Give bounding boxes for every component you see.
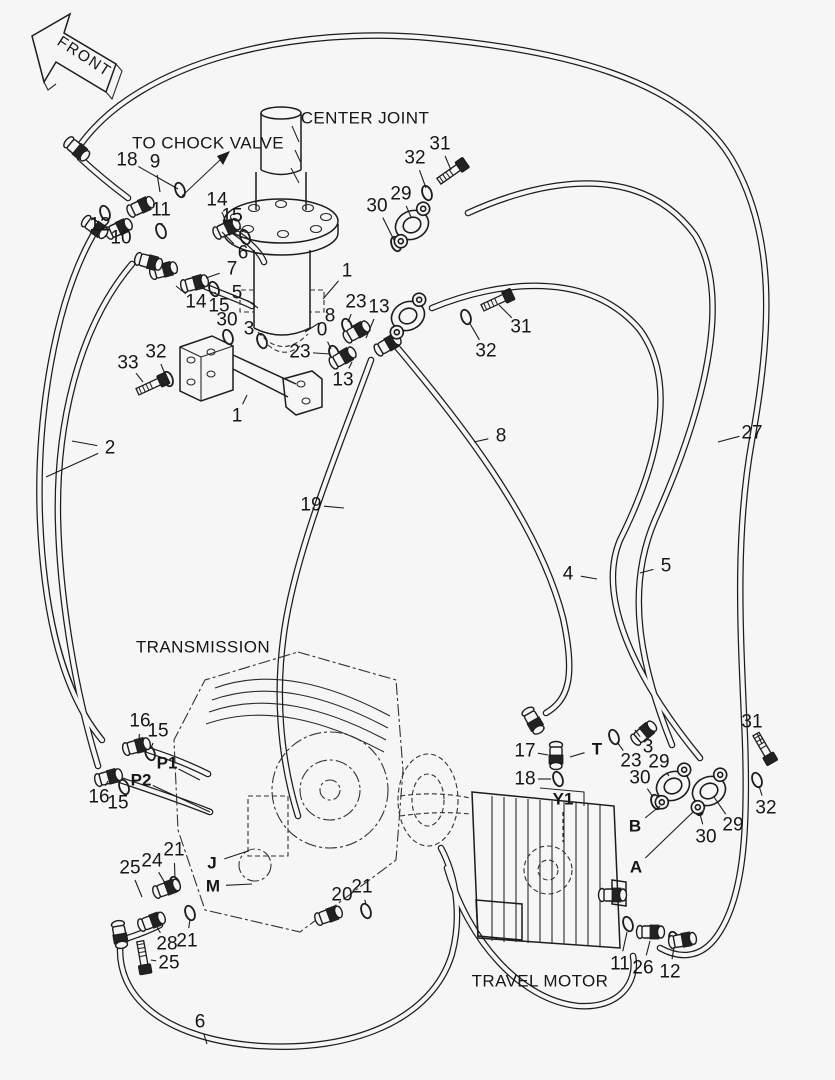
callout-20: 20 bbox=[331, 886, 352, 905]
callout-30: 30 bbox=[366, 197, 387, 216]
callout-4: 4 bbox=[563, 565, 574, 584]
callout-13: 13 bbox=[332, 371, 353, 390]
callout-5: 5 bbox=[661, 557, 672, 576]
callout-30: 30 bbox=[216, 311, 237, 330]
callout-16: 16 bbox=[88, 788, 109, 807]
callout-M: M bbox=[206, 878, 220, 895]
callout-12: 12 bbox=[659, 963, 680, 982]
callout-21: 21 bbox=[163, 841, 184, 860]
callout-31: 31 bbox=[741, 713, 762, 732]
callout-29: 29 bbox=[390, 185, 411, 204]
callout-30: 30 bbox=[629, 769, 650, 788]
label-transmission: TRANSMISSION bbox=[136, 639, 270, 656]
callout-14: 14 bbox=[185, 293, 206, 312]
callout-24: 24 bbox=[141, 852, 162, 871]
callout-5: 5 bbox=[232, 284, 243, 303]
callout-0: 0 bbox=[317, 321, 328, 340]
label-to-chock-valve: TO CHOCK VALVE bbox=[132, 135, 284, 152]
callout-B: B bbox=[629, 818, 641, 835]
callout-9: 9 bbox=[150, 153, 161, 172]
callout-21: 21 bbox=[351, 878, 372, 897]
callout-8: 8 bbox=[496, 427, 507, 446]
callout-30: 30 bbox=[695, 828, 716, 847]
callout-23: 23 bbox=[345, 293, 366, 312]
callout-31: 31 bbox=[429, 135, 450, 154]
callout-11: 11 bbox=[610, 955, 630, 974]
callout-1: 1 bbox=[342, 262, 353, 281]
callout-26: 26 bbox=[632, 959, 653, 978]
callout-13: 13 bbox=[368, 298, 389, 317]
callout-21: 21 bbox=[176, 932, 197, 951]
callout-6: 6 bbox=[238, 244, 249, 263]
callout-Y1: Y1 bbox=[553, 791, 574, 808]
callout-33: 33 bbox=[117, 354, 138, 373]
callout-25: 25 bbox=[119, 859, 140, 878]
callout-15: 15 bbox=[147, 722, 168, 741]
callout-25: 25 bbox=[158, 954, 179, 973]
callout-3: 3 bbox=[244, 320, 255, 339]
callout-29: 29 bbox=[648, 753, 669, 772]
callout-2: 2 bbox=[105, 439, 116, 458]
callout-18: 18 bbox=[514, 770, 535, 789]
callout-P2: P2 bbox=[131, 772, 152, 789]
callout-P1: P1 bbox=[157, 755, 178, 772]
callout-15: 15 bbox=[107, 794, 128, 813]
callout-32: 32 bbox=[755, 799, 776, 818]
callout-7: 7 bbox=[227, 260, 238, 279]
callout-6: 6 bbox=[195, 1013, 206, 1032]
callout-32: 32 bbox=[404, 149, 425, 168]
label-center-joint: CENTER JOINT bbox=[301, 110, 430, 127]
travel-motor-drawing bbox=[398, 754, 626, 948]
callout-32: 32 bbox=[145, 343, 166, 362]
callout-12: 12 bbox=[89, 216, 110, 235]
callout-A: A bbox=[630, 859, 642, 876]
callout-27: 27 bbox=[741, 424, 762, 443]
callout-T: T bbox=[592, 741, 602, 758]
callout-32: 32 bbox=[475, 342, 496, 361]
label-travel-motor: TRAVEL MOTOR bbox=[472, 973, 609, 990]
callout-10: 10 bbox=[110, 229, 131, 248]
callout-J: J bbox=[207, 855, 216, 872]
callout-31: 31 bbox=[510, 318, 531, 337]
callout-29: 29 bbox=[722, 816, 743, 835]
parts-diagram-page: FRONTTO CHOCK VALVECENTER JOINTTRANSMISS… bbox=[0, 0, 835, 1080]
callout-23: 23 bbox=[289, 343, 310, 362]
callout-18: 18 bbox=[116, 151, 137, 170]
callout-leader-lines bbox=[46, 156, 762, 1044]
callout-15: 15 bbox=[221, 207, 242, 226]
callout-28: 28 bbox=[156, 935, 177, 954]
callout-1: 1 bbox=[232, 407, 243, 426]
callout-19: 19 bbox=[300, 496, 321, 515]
callout-11: 11 bbox=[151, 201, 171, 220]
callout-17: 17 bbox=[514, 742, 535, 761]
